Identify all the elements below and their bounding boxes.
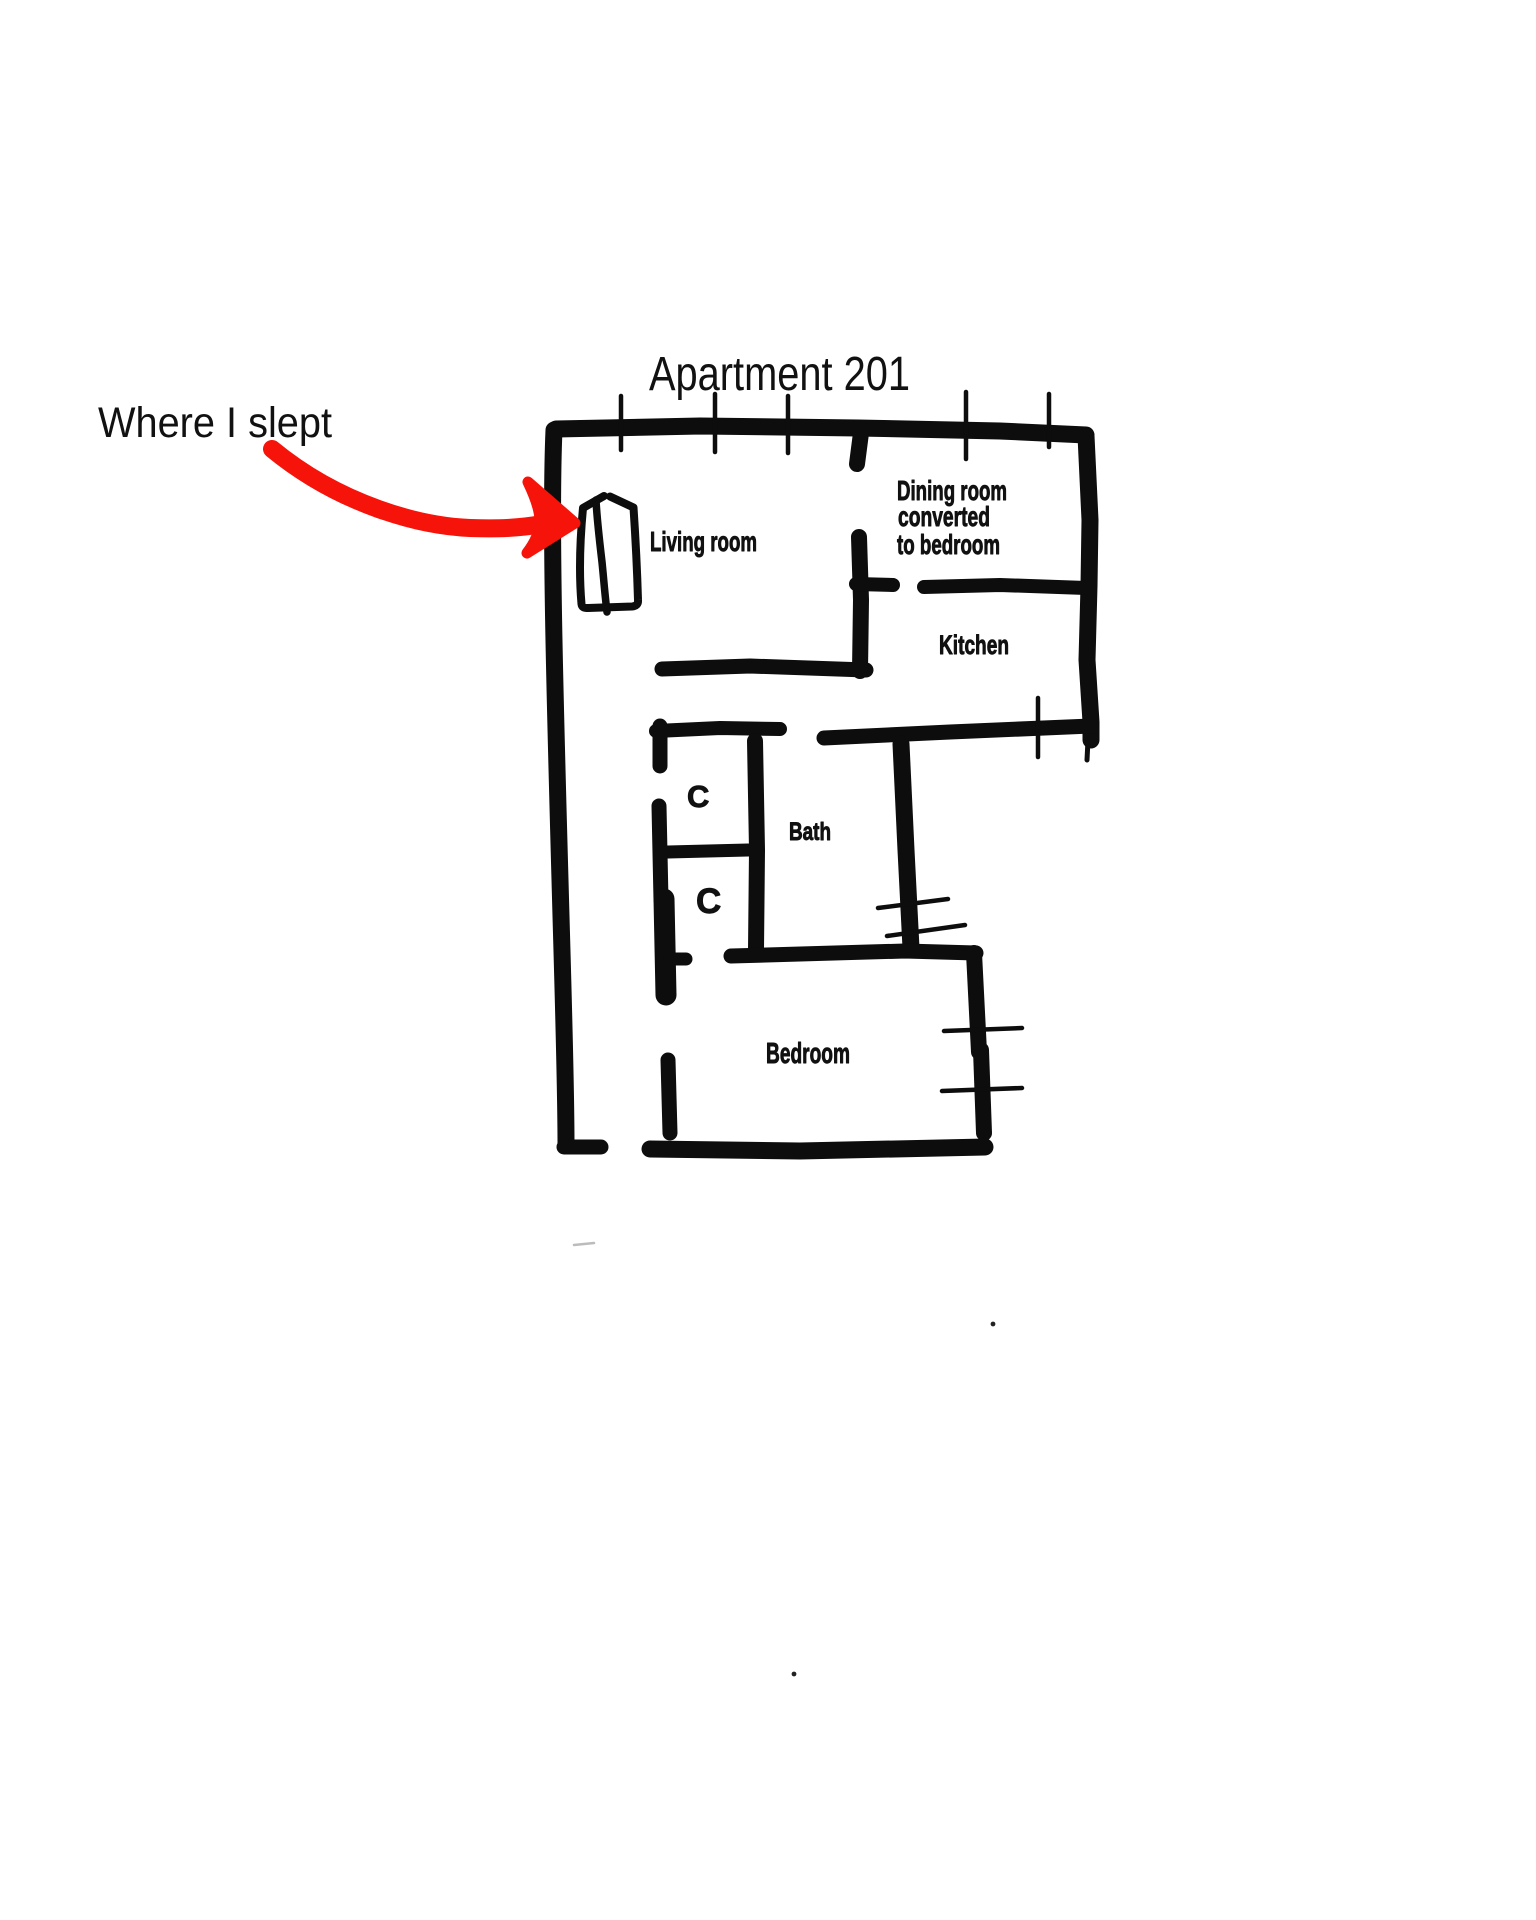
svg-text:Bedroom: Bedroom (766, 1038, 850, 1070)
svg-text:Bath: Bath (789, 818, 831, 846)
svg-text:Where I slept: Where I slept (98, 399, 332, 447)
svg-text:Living room: Living room (650, 526, 757, 557)
svg-text:C: C (687, 779, 709, 814)
svg-text:Kitchen: Kitchen (939, 630, 1009, 660)
svg-text:to bedroom: to bedroom (897, 529, 1000, 560)
svg-text:C: C (696, 882, 721, 921)
svg-text:Apartment 201: Apartment 201 (649, 348, 910, 401)
svg-text:converted: converted (898, 501, 990, 532)
